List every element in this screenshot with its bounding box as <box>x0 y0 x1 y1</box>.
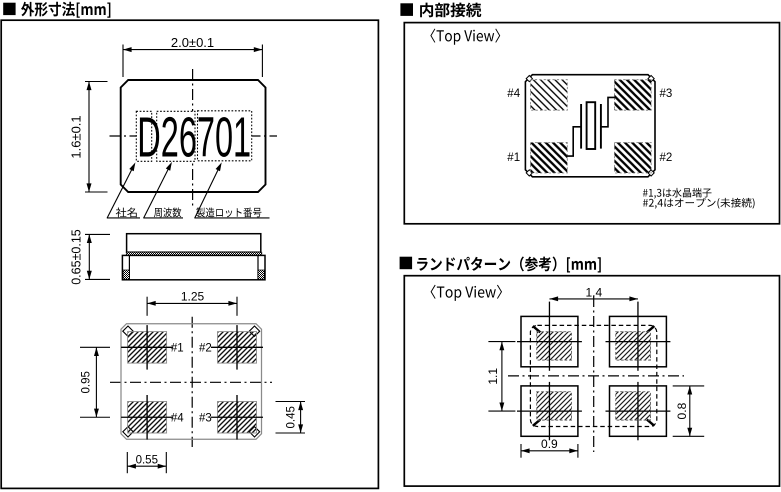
svg-text:0.55: 0.55 <box>136 454 158 466</box>
svg-text:1.25: 1.25 <box>181 290 205 304</box>
svg-text:0.8: 0.8 <box>675 402 689 419</box>
svg-text:#2: #2 <box>660 152 673 164</box>
svg-text:0.65±0.15: 0.65±0.15 <box>70 229 84 285</box>
svg-text:0.95: 0.95 <box>81 371 93 393</box>
svg-text:#1: #1 <box>171 343 184 355</box>
svg-text:1.6±0.1: 1.6±0.1 <box>69 115 84 158</box>
svg-text:#3: #3 <box>660 88 673 100</box>
svg-text:1.4: 1.4 <box>585 286 602 300</box>
svg-text:#4: #4 <box>507 88 520 100</box>
svg-text:D26701: D26701 <box>137 106 251 169</box>
svg-text:0.45: 0.45 <box>285 406 297 428</box>
svg-text:#3: #3 <box>199 413 212 425</box>
svg-text:1.1: 1.1 <box>486 368 500 385</box>
svg-text:#2: #2 <box>199 343 212 355</box>
svg-text:#1: #1 <box>507 152 520 164</box>
svg-text:0.9: 0.9 <box>541 437 558 451</box>
svg-text:#4: #4 <box>171 413 184 425</box>
svg-text:2.0±0.1: 2.0±0.1 <box>171 35 214 50</box>
